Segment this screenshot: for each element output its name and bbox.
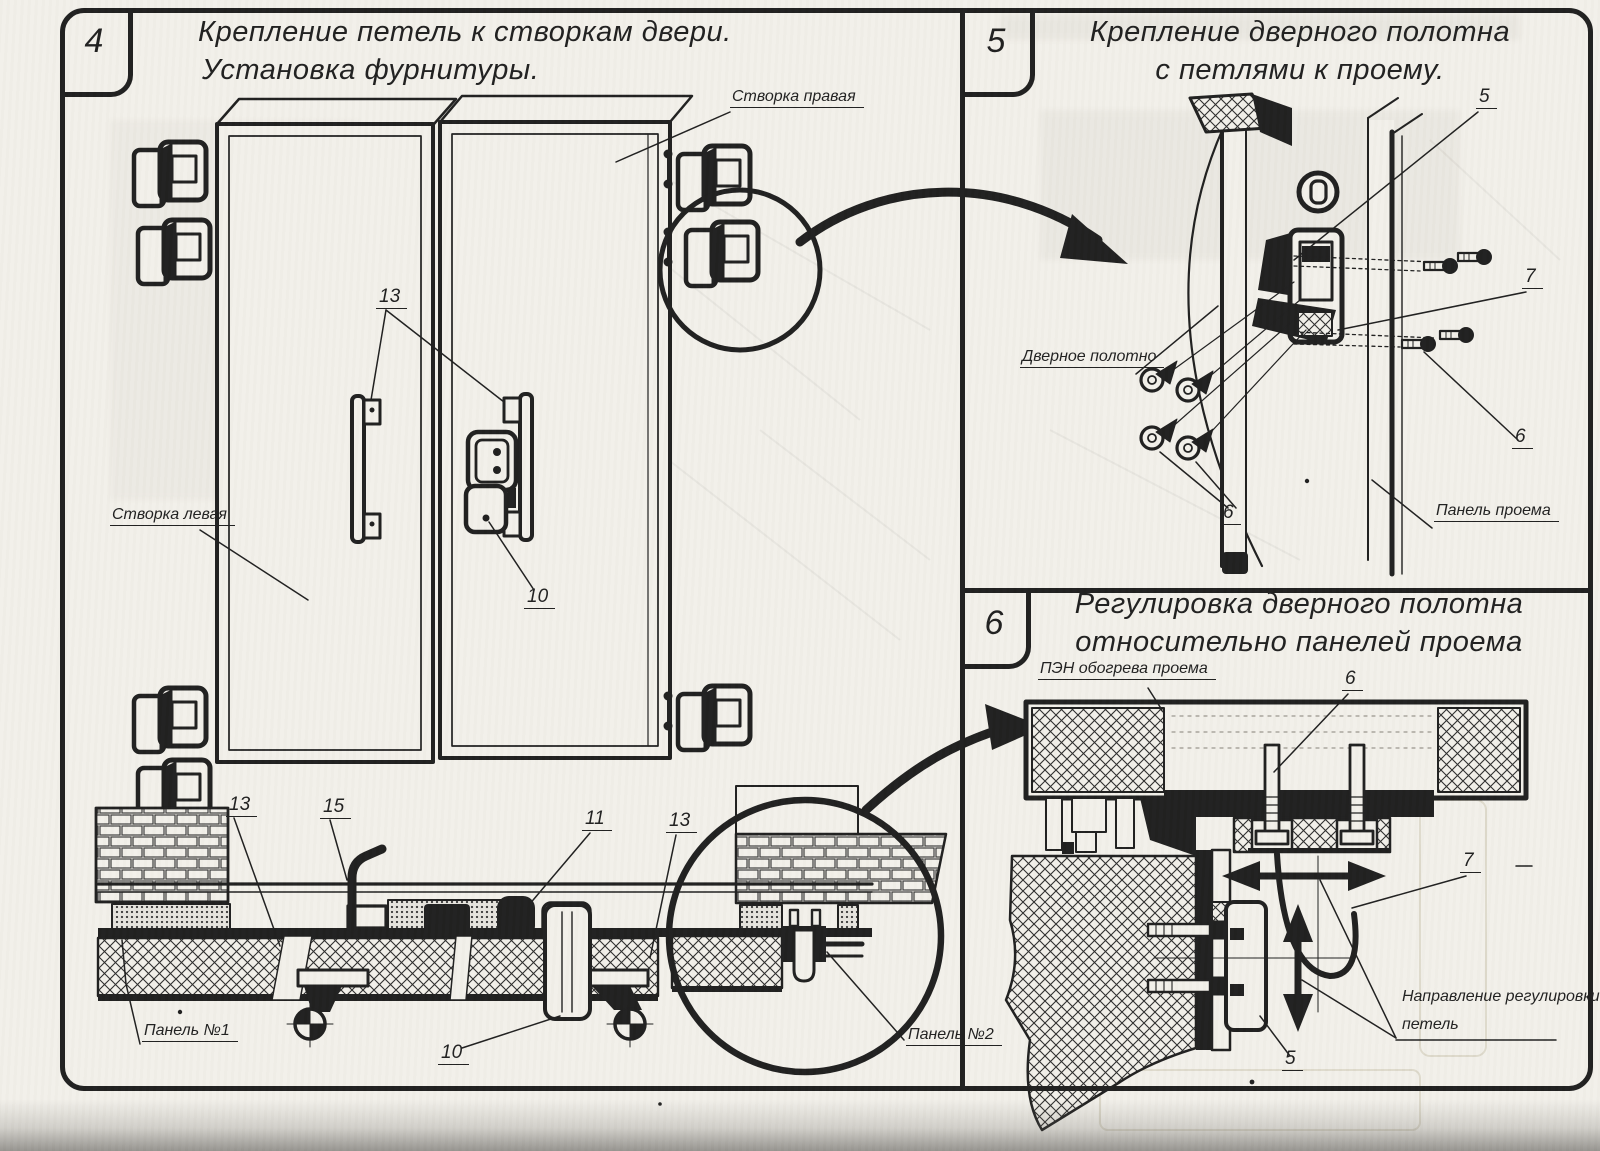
callout-13-left: 13: [226, 794, 257, 817]
callout-10-latch: 10: [524, 586, 555, 609]
callout-6-right: 6: [1512, 426, 1533, 449]
callout-13-right: 13: [666, 810, 697, 833]
callout-13-handles: 13: [376, 286, 407, 309]
step-number-6: 6: [985, 604, 1004, 643]
panel5-title-line2: с петлями к проему.: [1050, 54, 1550, 87]
step-number-4: 4: [85, 22, 104, 61]
label-panel-1: Панель №1: [142, 1022, 238, 1042]
label-panel-2: Панель №2: [906, 1026, 1002, 1046]
panel6-title-line2: относительно панелей проема: [1044, 626, 1554, 659]
sheet-border: [60, 8, 1593, 1091]
callout-7: 7: [1460, 850, 1481, 873]
callout-6: 6: [1342, 668, 1363, 691]
label-left-leaf: Створка левая: [110, 506, 235, 526]
callout-5: 5: [1476, 86, 1497, 109]
step-tab-5: 5: [962, 8, 1035, 97]
label-adjust-direction-line1: Направление регулировки: [1400, 988, 1600, 1007]
label-panel-opening: Панель проема: [1434, 502, 1559, 522]
step-tab-6: 6: [962, 590, 1031, 669]
callout-5: 5: [1282, 1048, 1303, 1071]
panel-divider-vertical: [960, 8, 965, 1086]
label-adjust-direction-line2: петель: [1400, 1016, 1467, 1035]
panel5-title-line1: Крепление дверного полотна: [1050, 16, 1550, 49]
label-heater: ПЭН обогрева проема: [1038, 660, 1216, 680]
label-door-leaf: Дверное полотно: [1020, 348, 1164, 368]
callout-6-bottom: 6: [1220, 502, 1241, 525]
panel6-title-line1: Регулировка дверного полотна: [1044, 588, 1554, 621]
step-tab-4: 4: [60, 8, 133, 97]
callout-7: 7: [1522, 266, 1543, 289]
panel4-title-line1: Крепление петель к створкам двери.: [198, 16, 732, 49]
step-number-5: 5: [987, 22, 1006, 61]
panel4-title-line2: Установка фурнитуры.: [202, 54, 539, 87]
callout-11: 11: [582, 808, 612, 831]
callout-10-bottom: 10: [438, 1042, 469, 1065]
scanned-assembly-sheet: 4 5 6 Крепление петель к створкам двери.…: [0, 0, 1600, 1151]
label-right-leaf: Створка правая: [730, 88, 864, 108]
callout-15: 15: [320, 796, 351, 819]
